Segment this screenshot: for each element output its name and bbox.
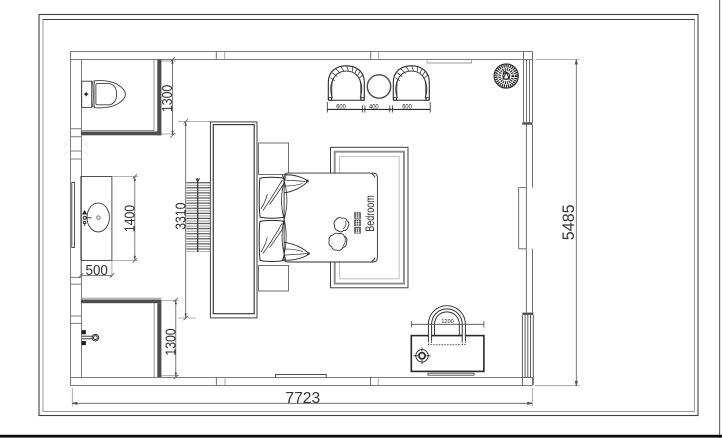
svg-text:5485: 5485 <box>559 204 578 240</box>
svg-text:1400: 1400 <box>122 205 139 232</box>
svg-text:500: 500 <box>86 263 108 279</box>
svg-text:600: 600 <box>336 103 346 110</box>
svg-text:3310: 3310 <box>173 203 190 230</box>
svg-text:Bedroom: Bedroom <box>363 195 377 232</box>
svg-text:1200: 1200 <box>441 319 453 325</box>
svg-text:7723: 7723 <box>285 390 320 407</box>
svg-text:600: 600 <box>402 103 412 110</box>
svg-text:400: 400 <box>369 103 379 110</box>
svg-text:1300: 1300 <box>159 85 176 112</box>
svg-text:1300: 1300 <box>163 328 180 355</box>
